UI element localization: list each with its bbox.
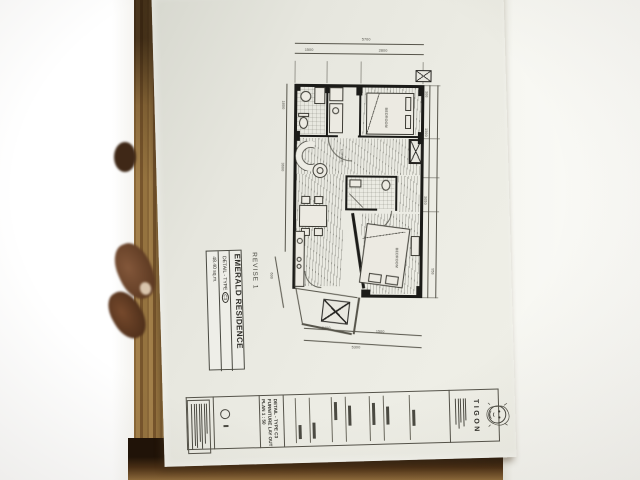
- extension-line: [422, 297, 438, 298]
- dim-label-right-3050: 3050: [423, 196, 427, 205]
- title-block-divider: [213, 396, 215, 449]
- dimension-line-top-overall: [295, 43, 424, 45]
- note-text-line: [203, 404, 205, 444]
- signature-label: [312, 423, 315, 439]
- bed2-pillow: [368, 273, 382, 284]
- toilet1-tank: [298, 113, 309, 117]
- dim-label-right-1500: 1500: [424, 128, 428, 137]
- note-text-line: [198, 404, 200, 442]
- wall-bottom-right: [361, 295, 422, 298]
- extension-line: [360, 61, 361, 83]
- dining-chair: [314, 196, 323, 204]
- shower-corner: [349, 193, 363, 207]
- toilet2: [381, 180, 390, 191]
- bath1-counter: [314, 87, 325, 104]
- bed1-pillow: [405, 97, 411, 111]
- fridge: [329, 87, 343, 101]
- dresser-bedroom2: [411, 236, 420, 256]
- tigon-brand: TIGON: [472, 399, 480, 434]
- dimension-line-top: [295, 53, 424, 55]
- dimension-line-right1: [427, 85, 430, 298]
- balcony-wall-right: [353, 297, 360, 334]
- tigon-lion-logo: [480, 402, 511, 427]
- project-title: EMERALD RESIDENCE: [233, 254, 245, 349]
- extension-line: [424, 138, 440, 139]
- dining-table: [299, 205, 327, 227]
- dim-label-balcony: 600: [269, 273, 273, 279]
- keyplan-mark: [223, 425, 228, 427]
- dimension-line-balcony: [275, 256, 284, 307]
- basin2: [349, 179, 361, 187]
- plan-scale-line: PLAN 1 : 50: [261, 399, 267, 425]
- balcony-wall-top: [295, 288, 357, 299]
- dim-label-top-right: 2800: [379, 48, 388, 52]
- dim-label-left-1800: 1800: [281, 101, 285, 110]
- title-block-top-border: [186, 388, 499, 398]
- living-label: LIVING: [340, 149, 344, 163]
- wall-fill: [294, 84, 300, 91]
- wall-fill: [294, 131, 300, 141]
- title-block: [186, 388, 500, 450]
- note-text-line: [193, 404, 195, 446]
- toilet1: [299, 117, 308, 129]
- white-surface-right: [503, 0, 640, 480]
- bed1-pillow: [405, 115, 411, 129]
- dim-label-right-950: 950: [430, 268, 434, 274]
- finger: [114, 142, 136, 172]
- wall-fill: [361, 290, 370, 298]
- signature-label: [412, 410, 415, 426]
- counter-sink: [297, 238, 303, 244]
- title-block-divider: [283, 394, 285, 447]
- dining-chair: [301, 196, 310, 204]
- extension-line: [424, 85, 440, 86]
- bed2-pillow: [385, 275, 399, 286]
- signature-label: [348, 406, 351, 426]
- extension-line: [423, 177, 439, 178]
- detail-type-line: DETAIL - TYPE C3: [273, 399, 279, 439]
- wall-bath2-left: [345, 175, 347, 210]
- dimension-line-right2: [435, 85, 438, 298]
- bedroom1-label: BEDROOM: [384, 108, 388, 128]
- signature-label: [334, 402, 337, 420]
- ac-unit-box-balcony: [321, 299, 350, 325]
- revise-label: REVISE 1: [251, 252, 259, 289]
- floor-plan: 5700 1500 2800: [264, 35, 445, 367]
- hand: [100, 130, 190, 350]
- dining-chair: [314, 228, 323, 236]
- project-area: 48.40 sq.m.: [211, 256, 218, 282]
- dim-label-left-3600: 3600: [281, 163, 285, 172]
- stove-burner: [297, 257, 302, 262]
- project-detail-type: DETAIL - TYPE C3: [221, 256, 229, 303]
- dim-label-right-300: 300: [424, 91, 428, 97]
- bed1-fold-line: [367, 94, 379, 134]
- signature-label: [386, 407, 389, 425]
- extension-line: [326, 61, 327, 83]
- title-block-divider: [449, 390, 451, 443]
- notes-box: [187, 400, 211, 455]
- dim-label-top-left: 1500: [305, 47, 314, 51]
- wall-bath2-right: [395, 176, 397, 211]
- washbasin-unit: [300, 91, 311, 102]
- corridor2-floor-hatch: [398, 176, 419, 212]
- title-block-bottom-border: [187, 440, 500, 450]
- bedroom2-label: BEDROOM: [395, 248, 399, 268]
- extension-line: [423, 211, 439, 212]
- photo-of-floorplan-sheet: { "colors": { "paper": "#eaeae2", "ink":…: [0, 0, 640, 480]
- dimension-line-bottom2: [304, 340, 422, 348]
- dim-label-bottom-5300: 5300: [352, 345, 361, 349]
- signature-label: [298, 425, 301, 439]
- balcony-wall-left: [295, 288, 303, 324]
- dim-label-bottom-2400: 2400: [322, 326, 331, 330]
- kitchen-sink: [332, 107, 339, 114]
- drawing-sheet: 5700 1500 2800: [152, 0, 517, 467]
- type-code-circled: C3: [222, 292, 229, 303]
- note-text-line: [206, 404, 208, 434]
- wall-fill: [356, 84, 362, 95]
- extension-line: [294, 61, 295, 83]
- dim-label-bottom-1500: 1500: [376, 330, 385, 334]
- ac-unit-box-top: [415, 70, 431, 82]
- detail-type-text: DETAIL - TYPE: [221, 256, 228, 291]
- round-table-inner: [317, 167, 324, 174]
- stove-burner: [297, 264, 302, 269]
- dim-label-overall-top: 5700: [362, 37, 371, 41]
